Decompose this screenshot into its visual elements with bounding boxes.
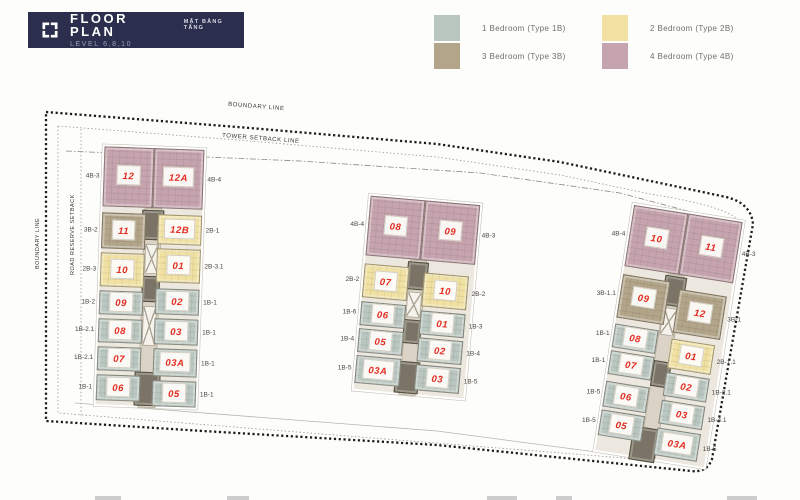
unit-number: 12 [693,308,706,321]
unit-type-label: 1B-5 [464,379,478,386]
unit-type-label: 1B-2 [81,298,95,305]
unit-number-plate: 10 [110,258,134,279]
unit-number: 10 [116,265,128,276]
unit-number-plate: 07 [107,348,131,369]
unit-number: 08 [389,221,402,233]
unit-number: 02 [171,297,183,308]
unit-type-label: 1B-1 [78,383,92,390]
unit-tile-10: 10 [624,205,688,275]
unit-type-label: 1B-4 [340,336,354,343]
unit-number-plate: 01 [678,344,705,367]
unit-number-plate: 01 [430,312,455,334]
unit-number-plate: 03 [164,321,188,342]
boundary-line-label-left: BOUNDARY LINE [35,185,41,269]
unit-number: 11 [118,225,129,236]
legend-item-3b: 3 Bedroom (Type 3B) [434,43,566,69]
unit-number: 05 [615,420,628,433]
unit-type-label: 1B-6 [343,309,357,316]
unit-tile-02: 02 [416,337,463,365]
unit-number: 10 [439,286,452,298]
unit-tile-09: 09 [616,274,670,325]
unit-number-plate: 05 [368,330,393,352]
unit-number-plate: 02 [427,339,452,361]
unit-number: 07 [113,354,125,365]
edge-artifact [556,496,572,500]
unit-number: 11 [705,241,718,254]
unit-type-label: 2B-3.1 [204,264,223,271]
unit-number-plate: 12B [164,218,196,239]
unit-type-label: 2B-1 [206,228,220,235]
unit-type-label: 2B-3 [83,265,97,272]
unit-number: 01 [172,261,184,272]
unit-type-label: 4B-4 [612,230,626,237]
unit-tile-08: 08 [612,323,659,354]
building-left: 124B-312A4B-4113B-212B2B-1102B-3012B-3.1… [96,146,205,407]
unit-number: 03A [368,365,388,378]
unit-number-plate: 03 [669,402,696,425]
unit-type-label: 1B-5 [587,388,601,395]
unit-number: 08 [114,326,126,337]
unit-number: 06 [619,391,632,404]
unit-number-plate: 03A [660,431,694,456]
unit-tile-11: 11 [101,212,146,250]
unit-number-plate: 09 [630,286,657,309]
unit-tile-12: 12 [673,289,727,340]
unit-tile-07: 07 [607,350,654,381]
header: FLOOR PLAN MẶT BẰNG TẦNG LEVEL 6,8,10 [28,12,244,48]
unit-number: 03A [165,358,185,370]
unit-number-plate: 06 [106,377,130,398]
unit-tile-01: 01 [667,338,715,375]
unit-number: 05 [374,337,387,349]
unit-number-plate: 08 [383,215,408,237]
unit-number: 03 [170,327,182,338]
unit-type-label: 1B-4.1 [707,417,726,424]
unit-number-plate: 03A [362,359,395,382]
unit-number: 09 [444,226,457,238]
unit-type-label: 1B-1 [201,361,215,368]
unit-number-plate: 06 [370,303,395,325]
unit-tile-05: 05 [151,380,196,408]
edge-artifact [227,496,249,500]
unit-number-plate: 12A [163,166,195,187]
unit-tile-12: 12 [102,146,154,208]
unit-number-plate: 02 [673,375,700,398]
unit-tile-01: 01 [156,248,201,284]
unit-type-label: 1B-5 [338,364,352,371]
unit-number-plate: 09 [438,219,463,241]
unit-number: 01 [684,351,697,364]
unit-type-label: 2B-2 [346,276,360,283]
unit-type-label: 1B-5 [582,417,596,424]
unit-tile-07: 07 [97,346,142,372]
page-subtitle-vn: MẶT BẰNG TẦNG [184,20,244,31]
unit-number: 07 [624,360,637,373]
legend-item-4b: 4 Bedroom (Type 4B) [602,43,734,69]
unit-tile-09: 09 [99,290,144,316]
unit-number: 08 [628,333,641,346]
level-label: LEVEL 6,8,10 [70,41,244,48]
road-reserve-setback-label: ROAD RESERVE SETBACK [70,163,76,275]
unit-tile-03A: 03A [653,427,701,462]
unit-tile-10: 10 [100,252,145,288]
unit-number: 01 [436,319,449,331]
unit-type-label: 4B-4 [350,221,364,228]
unit-tile-03A: 03A [153,348,198,378]
unit-tile-06: 06 [602,381,650,414]
unit-number: 12B [170,225,190,237]
unit-number: 03A [667,438,688,452]
unit-tile-08: 08 [365,196,425,261]
unit-type-label: 1B-3 [469,324,483,331]
legend-swatch-1b [434,15,460,41]
unit-number-plate: 02 [165,291,189,312]
unit-number: 02 [679,382,692,395]
unit-type-label: 1B-1 [203,300,217,307]
unit-number-plate: 09 [109,292,133,313]
unit-number-plate: 05 [608,413,635,436]
unit-tile-12B: 12B [157,214,202,246]
unit-type-label: 1B-4 [466,351,480,358]
unit-number: 09 [115,298,127,309]
unit-tile-03A: 03A [354,355,401,387]
legend-label: 4 Bedroom (Type 4B) [650,52,734,61]
building-middle: 084B-4094B-3072B-2102B-2061B-6011B-3051B… [354,196,480,399]
unit-tile-03: 03 [154,318,199,346]
unit-number: 10 [650,233,663,246]
edge-artifact [487,496,517,500]
unit-tile-10: 10 [421,273,469,311]
unit-type-label: 1B-1 [596,330,610,337]
legend-label: 1 Bedroom (Type 1B) [482,24,566,33]
unit-tile-01: 01 [419,310,466,338]
unit-type-label: 3B-1.1 [597,290,616,297]
unit-tile-03: 03 [658,400,705,431]
legend-item-1b: 1 Bedroom (Type 1B) [434,15,566,41]
unit-number-plate: 05 [162,383,186,404]
unit-type-label: 1B-5 [703,446,717,453]
legend-item-2b: 2 Bedroom (Type 2B) [602,15,734,41]
page-title: FLOOR PLAN [70,12,176,38]
unit-number-plate: 01 [166,254,190,275]
unit-number-plate: 07 [618,353,645,376]
unit-number-plate: 07 [373,270,398,292]
edge-artifact [95,496,121,500]
unit-number: 02 [433,346,446,358]
unit-number-plate: 11 [698,234,724,257]
unit-number-plate: 03 [425,367,450,389]
unit-type-label: 4B-3 [482,232,496,239]
unit-number-plate: 08 [622,326,649,349]
unit-type-label: 4B-3 [742,251,756,258]
unit-number: 06 [112,383,124,394]
unit-tile-09: 09 [420,200,480,265]
unit-type-label: 1B-1 [202,330,216,337]
unit-number: 07 [379,276,392,288]
unit-type-label: 2B-2 [471,291,485,298]
unit-number: 06 [376,310,389,322]
unit-tile-05: 05 [598,409,646,442]
unit-type-label: 4B-3 [86,172,100,179]
unit-number-plate: 12 [687,301,714,324]
unit-tile-03: 03 [414,364,461,394]
unit-type-label: 1B-2.1 [712,389,731,396]
unit-type-label: 4B-4 [207,177,221,184]
unit-tile-02: 02 [663,372,710,403]
unit-tile-06: 06 [96,374,141,402]
unit-type-label: 1B-1 [592,357,606,364]
edge-artifact [727,496,757,500]
unit-type-label: 1B-2.1 [74,354,93,361]
unit-number-plate: 11 [112,219,136,240]
unit-number: 03 [431,374,444,386]
unit-type-label: 1B-2.1 [75,326,94,333]
unit-number-plate: 03A [159,351,191,372]
unit-number-plate: 08 [108,320,132,341]
legend-swatch-2b [602,15,628,41]
legend-swatch-4b [602,43,628,69]
unit-type-label: 3B-2 [84,226,98,233]
brand-logo-icon [40,20,60,40]
unit-tile-05: 05 [357,328,404,356]
legend-swatch-3b [434,43,460,69]
unit-number: 12A [169,172,189,184]
unit-tile-11: 11 [679,214,743,284]
unit-type-label: 1B-1 [200,392,214,399]
unit-number: 09 [637,293,650,306]
unit-number-plate: 10 [643,226,670,249]
unit-number-plate: 12 [116,164,140,185]
unit-tile-02: 02 [155,288,200,316]
unit-tile-06: 06 [359,301,406,329]
legend-label: 2 Bedroom (Type 2B) [650,24,734,33]
unit-number-plate: 06 [613,384,640,407]
unit-number: 05 [168,389,180,400]
unit-number: 03 [675,409,688,422]
unit-number: 12 [122,171,134,182]
unit-tile-08: 08 [98,318,143,344]
legend-label: 3 Bedroom (Type 3B) [482,52,566,61]
unit-number-plate: 10 [432,279,457,301]
unit-type-label: 2B-1.1 [717,359,736,366]
unit-type-label: 3B-1 [727,316,741,323]
unit-tile-07: 07 [362,263,410,301]
unit-tile-12A: 12A [152,148,204,210]
